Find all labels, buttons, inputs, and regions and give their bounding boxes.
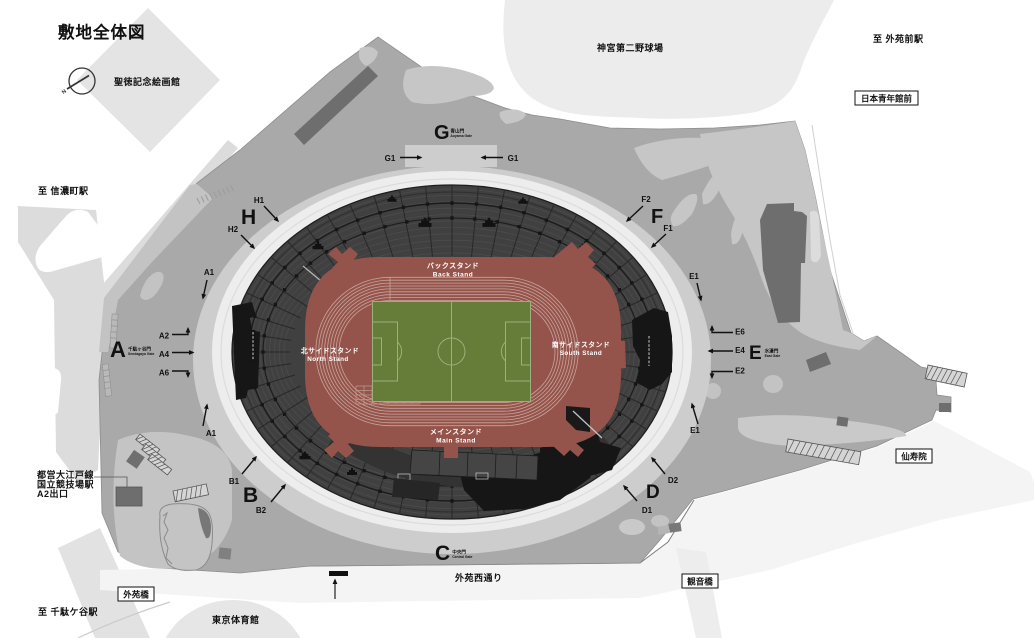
- svg-text:H: H: [241, 206, 256, 229]
- svg-text:F: F: [651, 206, 663, 228]
- svg-text:A1: A1: [204, 268, 215, 277]
- svg-text:Back Stand: Back Stand: [433, 272, 473, 279]
- svg-text:D: D: [646, 482, 660, 503]
- svg-text:日本青年館前: 日本青年館前: [861, 94, 913, 104]
- svg-text:A6: A6: [159, 369, 170, 378]
- svg-text:E6: E6: [735, 328, 745, 337]
- svg-text:南サイドスタンド: 南サイドスタンド: [552, 340, 610, 349]
- svg-text:A4: A4: [159, 350, 170, 359]
- svg-text:E: E: [749, 343, 762, 364]
- svg-text:Central Gate: Central Gate: [452, 555, 472, 559]
- svg-text:メインスタンド: メインスタンド: [430, 427, 482, 436]
- svg-text:聖徳記念絵画館: 聖徳記念絵画館: [114, 76, 181, 87]
- svg-text:E4: E4: [735, 346, 745, 355]
- svg-text:F2: F2: [641, 195, 651, 204]
- svg-text:B1: B1: [229, 477, 240, 486]
- svg-text:観音橋: 観音橋: [687, 577, 713, 587]
- svg-text:B2: B2: [256, 506, 267, 515]
- svg-text:G: G: [434, 122, 450, 144]
- svg-text:A1: A1: [206, 429, 217, 438]
- svg-text:G1: G1: [385, 154, 396, 163]
- svg-text:A2: A2: [159, 332, 170, 341]
- svg-text:H1: H1: [254, 196, 265, 205]
- svg-text:F1: F1: [663, 224, 673, 233]
- svg-text:東京体育館: 東京体育館: [212, 614, 260, 625]
- svg-text:E1: E1: [690, 426, 700, 435]
- svg-text:Sendagaya Gate: Sendagaya Gate: [128, 352, 154, 356]
- svg-text:D1: D1: [642, 506, 653, 515]
- svg-text:仙寿院: 仙寿院: [901, 452, 927, 462]
- svg-text:South Stand: South Stand: [560, 350, 603, 357]
- svg-text:バックスタンド: バックスタンド: [427, 261, 479, 270]
- svg-text:至 外苑前駅: 至 外苑前駅: [873, 33, 924, 44]
- svg-text:A: A: [110, 337, 126, 362]
- svg-text:都営大江戸線: 都営大江戸線: [36, 469, 94, 480]
- svg-text:国立競技場駅: 国立競技場駅: [37, 479, 95, 490]
- svg-text:C: C: [435, 542, 450, 565]
- svg-text:至 信濃町駅: 至 信濃町駅: [38, 185, 89, 196]
- svg-text:至 千駄ケ谷駅: 至 千駄ケ谷駅: [38, 606, 99, 617]
- svg-text:East Gate: East Gate: [765, 354, 781, 358]
- svg-text:Aoyama Gate: Aoyama Gate: [450, 134, 472, 138]
- svg-text:北サイドスタンド: 北サイドスタンド: [301, 346, 359, 355]
- svg-text:神宮第二野球場: 神宮第二野球場: [597, 42, 664, 53]
- svg-text:敷地全体図: 敷地全体図: [58, 22, 146, 42]
- svg-text:A2出口: A2出口: [37, 488, 69, 499]
- svg-text:E2: E2: [735, 367, 745, 376]
- svg-text:G1: G1: [508, 154, 519, 163]
- svg-text:外苑橋: 外苑橋: [122, 590, 149, 600]
- svg-text:H2: H2: [228, 225, 239, 234]
- svg-text:North Stand: North Stand: [307, 356, 349, 363]
- svg-text:Main Stand: Main Stand: [436, 438, 476, 445]
- svg-text:E1: E1: [689, 272, 699, 281]
- svg-text:D2: D2: [668, 476, 679, 485]
- svg-text:B: B: [243, 484, 258, 507]
- svg-text:外苑西通り: 外苑西通り: [454, 572, 503, 583]
